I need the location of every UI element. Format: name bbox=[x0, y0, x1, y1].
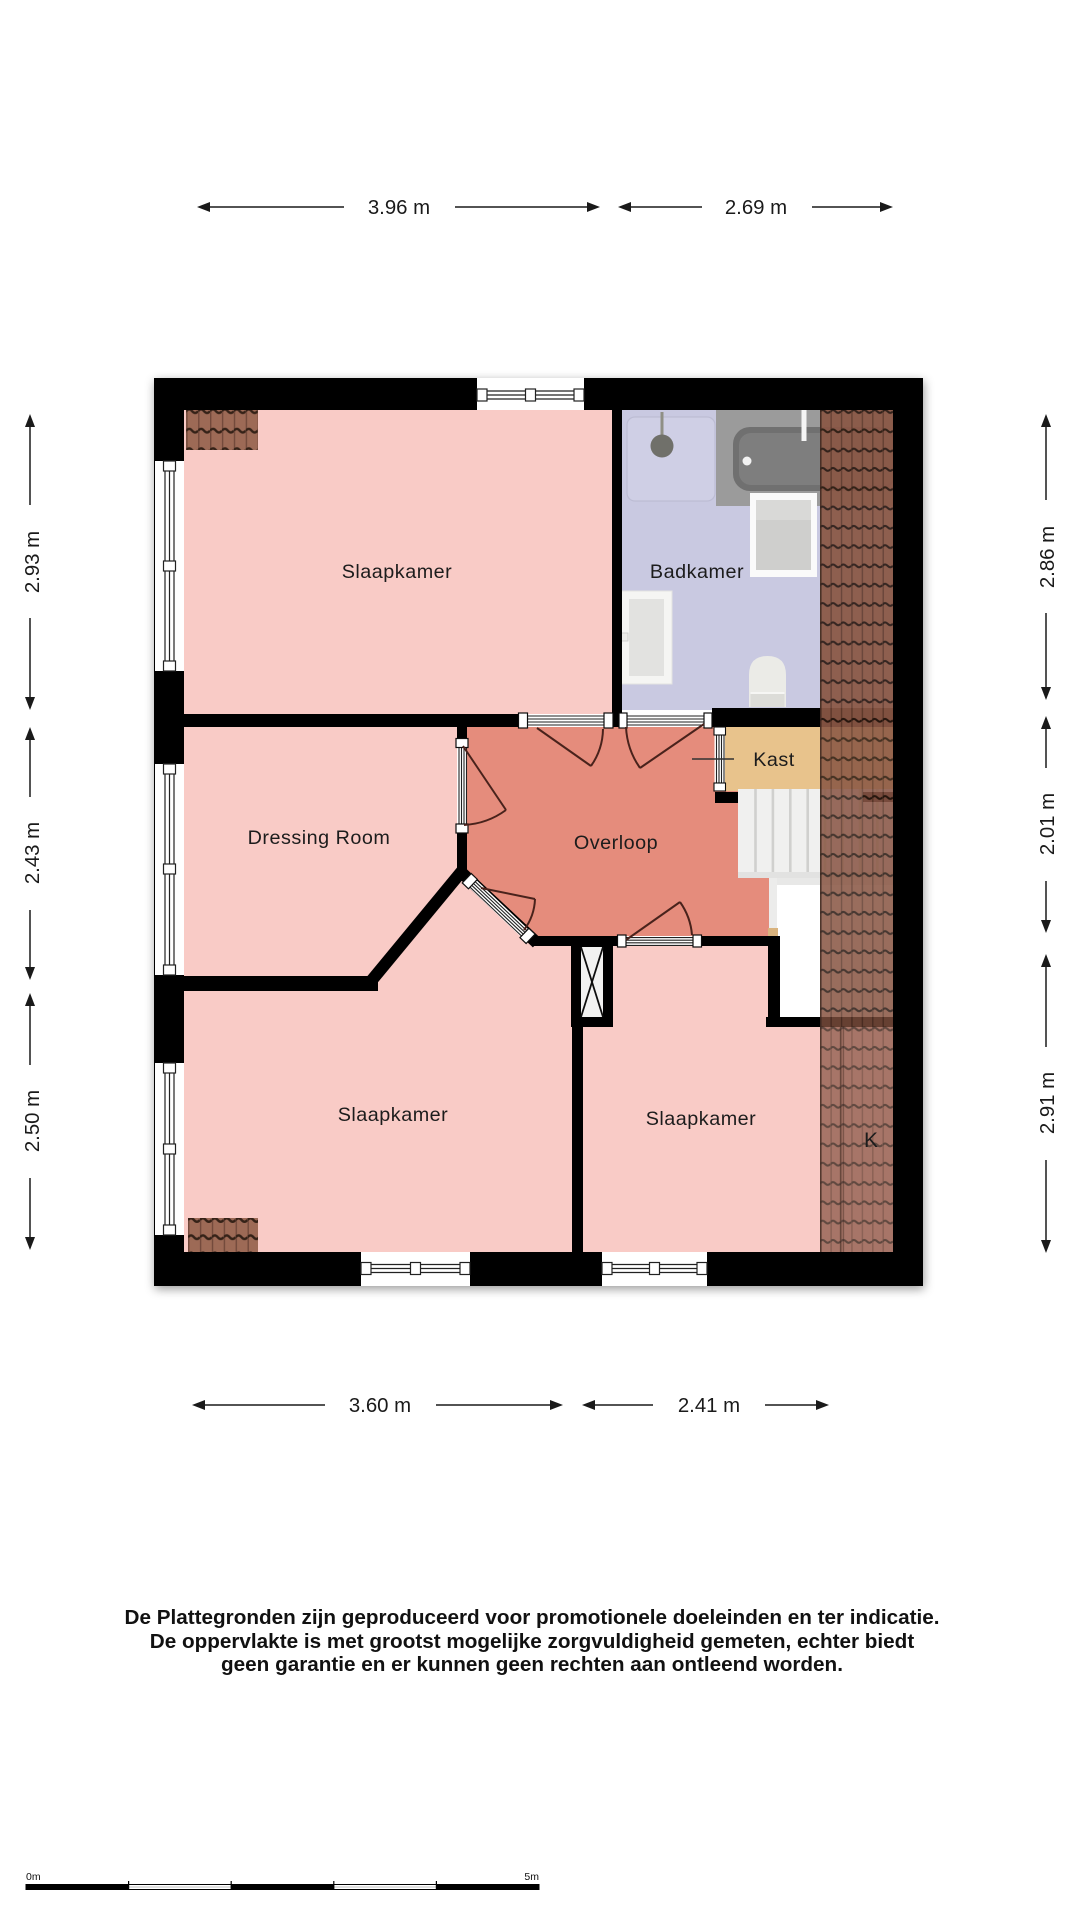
svg-text:2.86 m: 2.86 m bbox=[1037, 526, 1059, 588]
svg-text:De Plattegronden zijn geproduc: De Plattegronden zijn geproduceerd voor … bbox=[125, 1606, 940, 1629]
svg-text:De oppervlakte is met grootst: De oppervlakte is met grootst mogelijke … bbox=[150, 1630, 915, 1653]
svg-text:2.69 m: 2.69 m bbox=[725, 197, 787, 219]
svg-text:Slaapkamer: Slaapkamer bbox=[342, 561, 453, 583]
svg-text:2.93 m: 2.93 m bbox=[22, 531, 44, 593]
svg-text:geen garantie en er kunnen gee: geen garantie en er kunnen geen rechten … bbox=[221, 1653, 843, 1676]
svg-text:2.41 m: 2.41 m bbox=[678, 1395, 740, 1417]
svg-text:Badkamer: Badkamer bbox=[650, 561, 744, 583]
svg-text:3.60 m: 3.60 m bbox=[349, 1395, 411, 1417]
svg-text:3.96 m: 3.96 m bbox=[368, 197, 430, 219]
svg-text:K: K bbox=[864, 1129, 878, 1152]
svg-text:2.01 m: 2.01 m bbox=[1037, 793, 1059, 855]
svg-text:5m: 5m bbox=[524, 1871, 539, 1883]
svg-text:2.91 m: 2.91 m bbox=[1037, 1072, 1059, 1134]
svg-text:Overloop: Overloop bbox=[574, 832, 658, 854]
svg-text:0m: 0m bbox=[26, 1871, 41, 1883]
svg-text:Dressing Room: Dressing Room bbox=[248, 827, 391, 849]
svg-text:Slaapkamer: Slaapkamer bbox=[646, 1108, 757, 1130]
svg-text:2.50 m: 2.50 m bbox=[22, 1090, 44, 1152]
svg-text:Kast: Kast bbox=[753, 749, 795, 771]
svg-text:Slaapkamer: Slaapkamer bbox=[338, 1104, 449, 1126]
svg-text:2.43 m: 2.43 m bbox=[22, 822, 44, 884]
